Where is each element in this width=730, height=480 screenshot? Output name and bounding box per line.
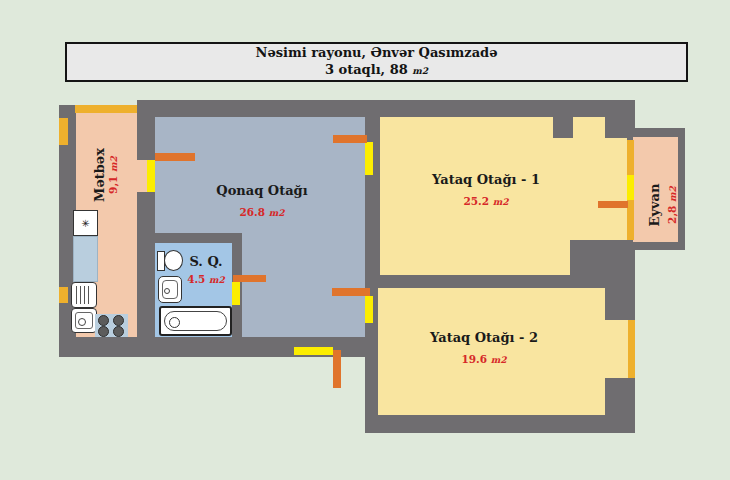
kitchen-sink-icon: [71, 308, 97, 333]
balcony-area: 2,8 m2: [666, 186, 679, 224]
opening-entrance: [294, 347, 333, 355]
door-bedroom2: [332, 288, 370, 296]
kitchen-name: Mətbəx: [92, 148, 107, 202]
label-bathroom: S. Q. 4.5 m2: [187, 254, 225, 286]
stove-icon: [95, 314, 128, 337]
room-bedroom1-nook: [605, 138, 627, 240]
door-kitchen: [155, 153, 195, 161]
kitchen-counter: [73, 236, 98, 282]
stove-burner: [98, 326, 109, 337]
door-bedroom1: [333, 135, 367, 143]
window-balcony-lower: [627, 200, 634, 240]
label-balcony: Eyvan 2,8 m2: [647, 184, 679, 227]
window-kitchen-left-2: [59, 287, 68, 303]
title-location: Nəsimi rayonu, Ənvər Qasımzadə: [256, 45, 498, 61]
opening-bathroom: [232, 282, 240, 305]
label-bedroom2: Yataq Otağı - 2 19.6 m2: [430, 330, 538, 366]
door-balcony: [598, 201, 628, 208]
title-specs: 3 otaqlı, 88 m2: [325, 62, 428, 79]
wall-pier-bedrooms: [570, 240, 607, 288]
wall-pier-top: [553, 117, 573, 138]
bedroom2-area: 19.6 m2: [461, 353, 506, 366]
title-banner: Nəsimi rayonu, Ənvər Qasımzadə 3 otaqlı,…: [65, 42, 688, 82]
stove-burner: [113, 315, 124, 326]
wall-bathroom-top: [150, 233, 242, 243]
label-bedroom1: Yataq Otağı - 1 25.2 m2: [432, 172, 540, 208]
window-kitchen-left-1: [59, 118, 68, 145]
bedroom1-name: Yataq Otağı - 1: [432, 172, 540, 187]
sink-drain: [78, 318, 86, 326]
door-entrance: [333, 350, 341, 388]
window-balcony-upper: [627, 140, 634, 175]
opening-kitchen: [147, 160, 155, 192]
stove-burner: [98, 315, 109, 326]
opening-balcony: [627, 175, 634, 200]
opening-bedroom2: [365, 296, 373, 323]
kitchen-area: 9,1 m2: [107, 156, 120, 194]
toilet-bowl: [164, 250, 183, 271]
opening-bedroom1: [365, 142, 373, 175]
living-name: Qonaq Otağı: [216, 183, 307, 198]
bedroom2-name: Yataq Otağı - 2: [430, 330, 538, 345]
drainboard-ribs: [76, 286, 92, 304]
fridge-icon: ✳: [73, 210, 98, 236]
floor-plan-page: { "title": { "line1": "Nəsimi rayonu, Ən…: [0, 0, 730, 480]
balcony-name: Eyvan: [647, 184, 662, 227]
bathroom-name: S. Q.: [189, 254, 222, 269]
opening-kitchen-fill: [137, 160, 147, 192]
stove-burner: [113, 326, 124, 337]
window-kitchen-top: [75, 105, 137, 113]
washbasin-drain: [164, 288, 170, 294]
washbasin-icon: [158, 276, 182, 303]
bathtub-drain: [169, 317, 180, 328]
label-living: Qonaq Otağı 26.8 m2: [216, 183, 307, 219]
label-kitchen: Mətbəx 9,1 m2: [92, 148, 120, 202]
living-area: 26.8 m2: [239, 206, 284, 219]
room-bedroom2-nook: [605, 320, 628, 378]
window-bedroom2-right: [628, 320, 635, 378]
kitchen-sink-drainboard-icon: [71, 282, 97, 308]
bathroom-area: 4.5 m2: [187, 273, 225, 286]
bedroom1-area: 25.2 m2: [463, 195, 508, 208]
door-bathroom: [233, 275, 266, 282]
unit-label: m2: [412, 66, 428, 76]
bathtub-icon: [159, 306, 232, 336]
